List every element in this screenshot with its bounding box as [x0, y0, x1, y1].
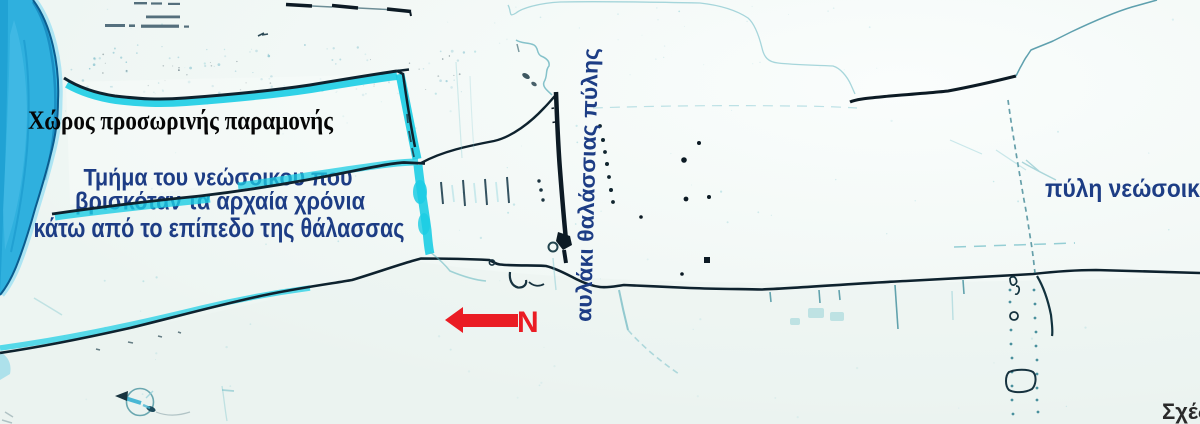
svg-text:πύλη νεώσοικο: πύλη νεώσοικο [1045, 175, 1200, 203]
svg-text:Σχέδ: Σχέδ [1162, 399, 1200, 424]
svg-text:Χώρος προσωρινής παραμονής: Χώρος προσωρινής παραμονής [28, 105, 334, 135]
svg-text:κάτω από το επίπεδο της θάλασσ: κάτω από το επίπεδο της θάλασσας [34, 213, 405, 243]
svg-text:N: N [517, 306, 539, 339]
